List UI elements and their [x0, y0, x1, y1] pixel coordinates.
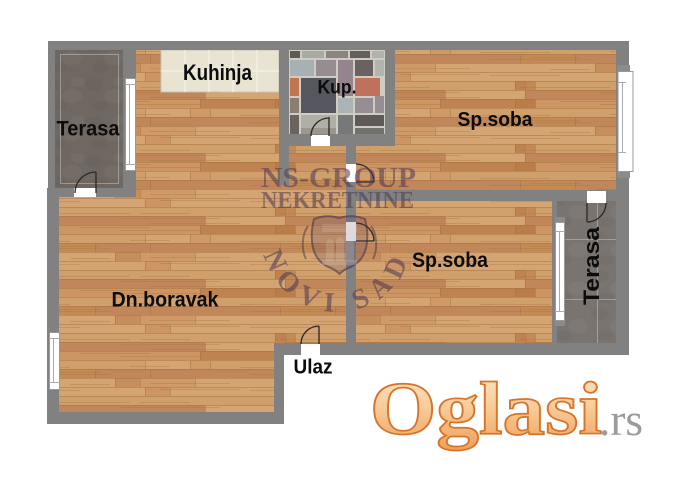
svg-text:Sp.soba: Sp.soba: [412, 249, 488, 272]
svg-text:.rs: .rs: [599, 395, 643, 445]
svg-text:Ulaz: Ulaz: [294, 356, 333, 379]
svg-text:Kuhinja: Kuhinja: [183, 60, 253, 85]
svg-text:Sp.soba: Sp.soba: [458, 108, 534, 131]
svg-text:Terasa: Terasa: [57, 117, 121, 141]
svg-text:Kup.: Kup.: [318, 78, 357, 99]
svg-text:Terasa: Terasa: [579, 226, 604, 305]
svg-text:NEKRETNINE: NEKRETNINE: [261, 188, 414, 214]
svg-text:Dn.boravak: Dn.boravak: [112, 288, 219, 312]
svg-text:Oglasi: Oglasi: [370, 368, 602, 451]
